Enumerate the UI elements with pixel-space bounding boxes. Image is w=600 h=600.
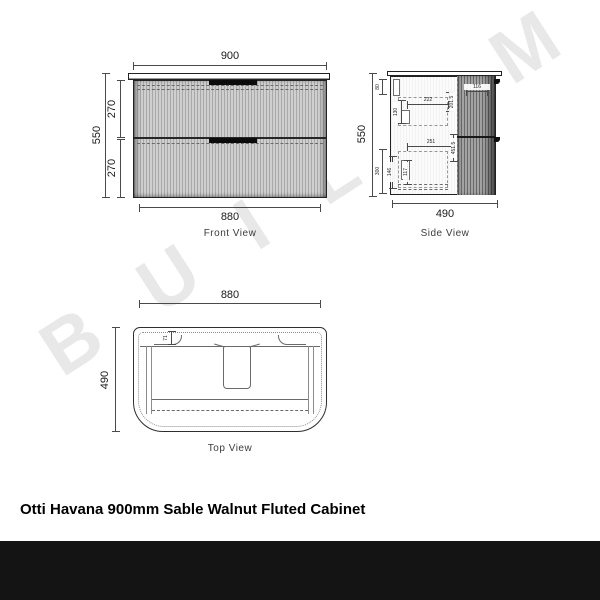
front-height-dim: 550 (91, 118, 103, 152)
top-view-label: Top View (180, 443, 280, 454)
top-right-bracket (278, 335, 306, 345)
front-hidden-line-2 (137, 89, 323, 90)
side-bottom-handle-profile (494, 137, 500, 142)
side-hidden-line-2 (398, 189, 448, 190)
footer-bar: BUILDMAT tti australia (0, 541, 600, 600)
top-left-side-panel (146, 346, 152, 414)
side-dim-451-5: 451.5 (451, 138, 457, 158)
front-hidden-line-1 (137, 85, 323, 86)
side-dim-146: 146 (387, 162, 393, 182)
side-dim-130-line (401, 100, 402, 124)
top-dim-71-line (171, 331, 172, 345)
side-dim-251-line (407, 146, 455, 147)
front-width-top-dim: 900 (133, 50, 327, 62)
front-hidden-line-3 (137, 143, 323, 144)
spec-sheet-page: B U I L D M A T 900 550 270 270 880 Fron… (0, 0, 600, 600)
side-height-dim-line (372, 73, 373, 197)
side-dim-130: 130 (393, 102, 399, 122)
side-back-rail (393, 79, 400, 96)
side-dim-116: 116 (464, 84, 490, 90)
side-dim-222: 222 (407, 97, 449, 103)
top-width-dim: 880 (139, 289, 321, 301)
top-plumbing-notch (223, 347, 251, 389)
side-dim-80-line (382, 79, 383, 95)
top-hidden-line (152, 410, 308, 411)
front-top-drawer-handle (209, 80, 257, 85)
front-view-label: Front View (180, 228, 280, 239)
side-depth-dim: 490 (392, 208, 498, 220)
side-height-dim: 550 (356, 117, 368, 151)
side-dim-300-line (382, 149, 383, 194)
top-width-dim-line (139, 303, 321, 304)
side-dim-117: 117 (403, 162, 409, 182)
product-title: Otti Havana 900mm Sable Walnut Fluted Ca… (20, 501, 365, 518)
top-front-inner-line (152, 399, 308, 400)
top-depth-dim: 490 (99, 363, 111, 397)
side-dim-251: 251 (407, 139, 455, 145)
front-drawer-top-dim: 270 (106, 92, 118, 126)
side-depth-dim-line (392, 203, 498, 204)
side-dim-116-line (466, 91, 488, 92)
side-dim-80: 80 (375, 77, 381, 97)
side-top-handle-profile (494, 79, 500, 84)
side-dim-201-5: 201.5 (449, 92, 455, 112)
top-right-side-panel (308, 346, 314, 414)
side-dim-300: 300 (375, 161, 381, 181)
front-bottom-drawer-handle (209, 138, 257, 143)
side-drawer-divider (457, 136, 495, 138)
top-depth-dim-line (115, 327, 116, 432)
drawing-layer: 900 550 270 270 880 Front View 550 (0, 0, 600, 600)
front-countertop (128, 73, 330, 80)
front-drawer-top-dim-line (120, 80, 121, 138)
side-dim-222-line (407, 104, 449, 105)
side-top-drawer-runner (401, 110, 410, 124)
side-view-label: Side View (395, 228, 495, 239)
front-width-top-dim-line (133, 65, 327, 66)
front-drawer-bottom-dim: 270 (106, 151, 118, 185)
front-drawer-bottom-dim-line (120, 139, 121, 198)
top-dim-71: 71 (163, 328, 169, 348)
front-width-bottom-dim-line (139, 207, 321, 208)
front-width-bottom-dim: 880 (139, 211, 321, 223)
